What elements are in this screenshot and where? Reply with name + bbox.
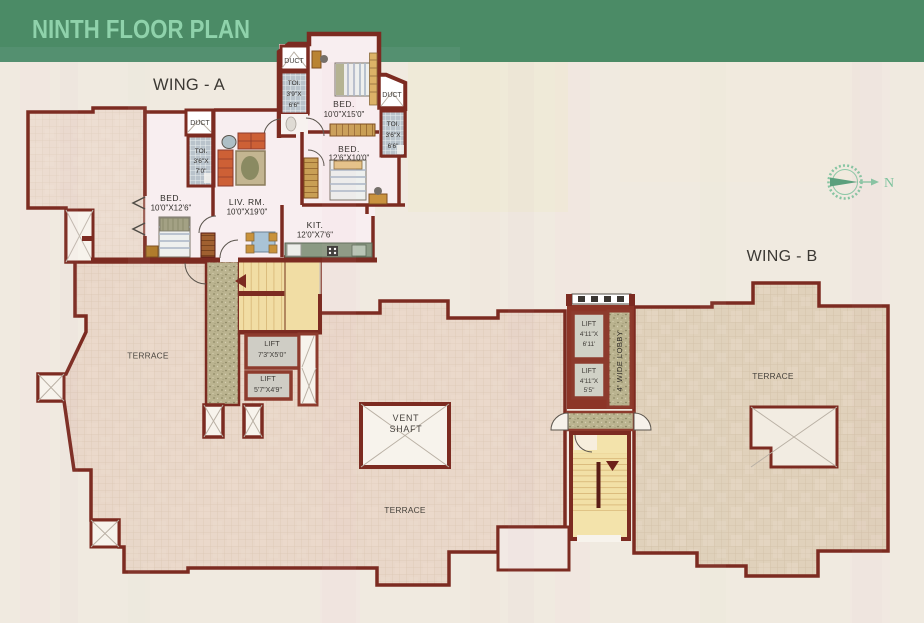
- svg-text:6'11': 6'11': [583, 341, 596, 348]
- svg-text:7'0": 7'0": [196, 168, 207, 175]
- svg-text:VENT: VENT: [393, 413, 420, 423]
- svg-text:N: N: [884, 176, 894, 191]
- svg-text:5'5": 5'5": [584, 387, 595, 394]
- svg-text:3'6"X: 3'6"X: [193, 158, 209, 165]
- svg-text:WING - A: WING - A: [153, 76, 225, 94]
- svg-text:BED.: BED.: [160, 193, 182, 203]
- svg-text:TOI.: TOI.: [288, 80, 301, 87]
- svg-text:NINTH FLOOR PLAN: NINTH FLOOR PLAN: [32, 14, 250, 44]
- svg-text:LIFT: LIFT: [264, 339, 280, 348]
- svg-text:10'0"X19'0": 10'0"X19'0": [227, 208, 268, 217]
- svg-text:TOI.: TOI.: [387, 121, 400, 128]
- svg-text:TERRACE: TERRACE: [752, 371, 794, 381]
- svg-text:WING - B: WING - B: [747, 248, 818, 265]
- svg-text:KIT.: KIT.: [307, 220, 324, 230]
- svg-text:5'7"X4'9": 5'7"X4'9": [254, 387, 282, 394]
- svg-text:3'9"X: 3'9"X: [286, 91, 302, 98]
- svg-text:LIFT: LIFT: [260, 374, 276, 383]
- svg-text:4'11"X: 4'11"X: [580, 331, 599, 338]
- svg-text:6'6": 6'6": [289, 102, 300, 109]
- svg-text:LIV. RM.: LIV. RM.: [229, 197, 265, 207]
- svg-text:10'0"X12'6": 10'0"X12'6": [151, 204, 192, 213]
- svg-text:LIFT: LIFT: [582, 368, 597, 375]
- svg-text:DUCT: DUCT: [382, 92, 402, 99]
- svg-text:4'11"X: 4'11"X: [580, 378, 599, 385]
- svg-text:DUCT: DUCT: [284, 58, 304, 65]
- svg-text:LIFT: LIFT: [582, 321, 597, 328]
- svg-text:7'3"X5'0": 7'3"X5'0": [258, 352, 286, 359]
- svg-text:SHAFT: SHAFT: [390, 424, 423, 434]
- svg-text:TOI.: TOI.: [195, 148, 208, 155]
- svg-text:TERRACE: TERRACE: [384, 505, 426, 515]
- svg-text:DUCT: DUCT: [190, 120, 210, 127]
- svg-text:3'6"X: 3'6"X: [385, 132, 401, 139]
- svg-text:4' WIDE LOBBY: 4' WIDE LOBBY: [615, 331, 624, 392]
- svg-text:6'6": 6'6": [388, 143, 399, 150]
